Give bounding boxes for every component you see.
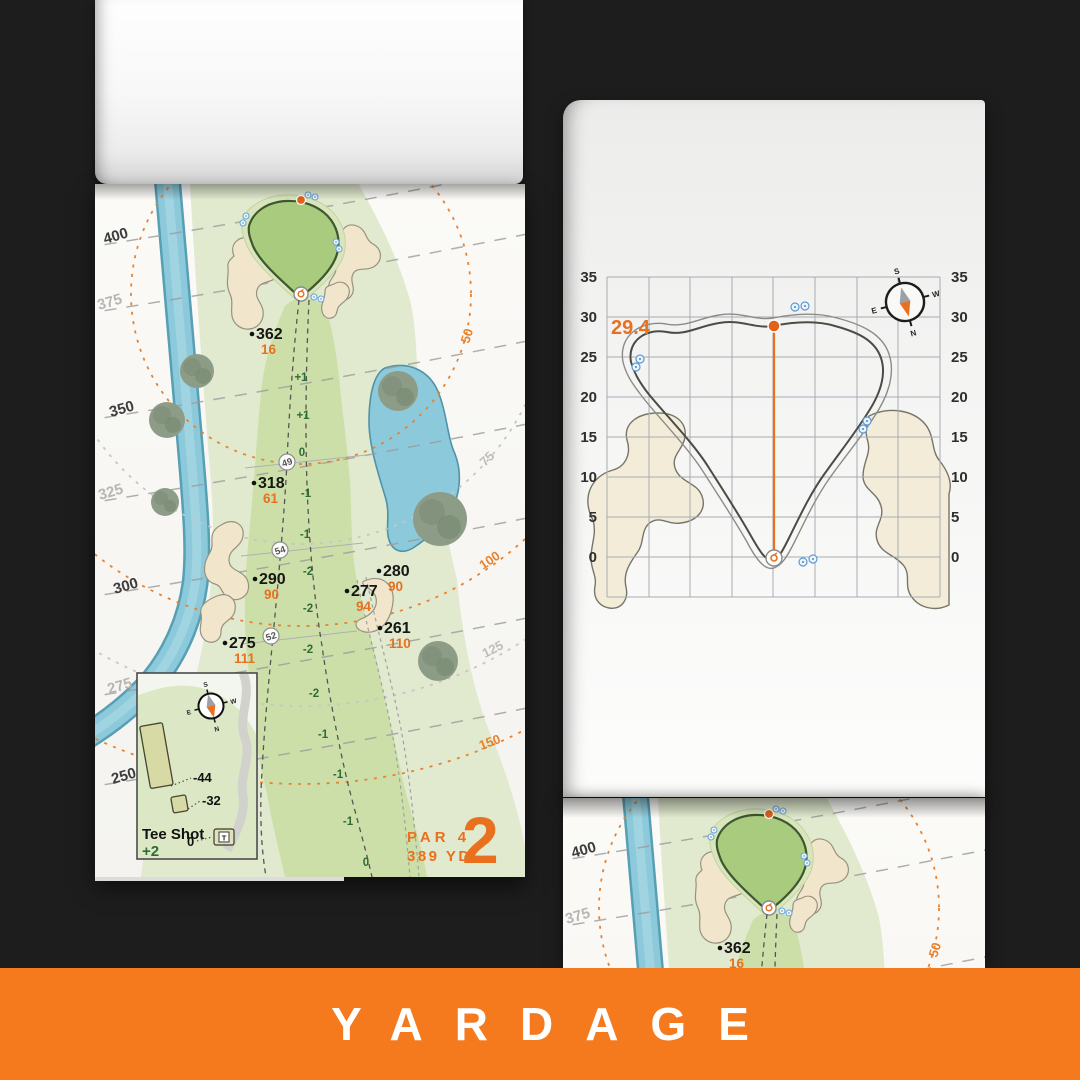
banner-title: YARDAGE — [299, 1001, 781, 1047]
depth-value: 29.4 — [611, 317, 651, 339]
hole-map-preview — [563, 798, 985, 968]
axis-tick: 10 — [951, 469, 968, 486]
axis-tick: 25 — [951, 349, 968, 366]
compass-n: N — [909, 328, 917, 338]
axis-tick: 25 — [580, 349, 597, 366]
yardage-banner: YARDAGE — [0, 968, 1080, 1080]
green-detail-page: 29.4 35 30 25 20 15 10 5 0 35 30 25 20 1… — [563, 100, 985, 797]
axis-tick: 5 — [589, 509, 597, 526]
axis-tick: 0 — [589, 549, 597, 566]
greenside-bunkers — [588, 410, 950, 608]
axis-tick: 30 — [580, 309, 597, 326]
pin-icon — [766, 550, 782, 566]
axis-tick: 15 — [951, 429, 968, 446]
compass-icon: S N W E — [862, 258, 949, 347]
axis-tick: 20 — [580, 389, 597, 406]
green-detail-chart: 29.4 35 30 25 20 15 10 5 0 35 30 25 20 1… — [563, 100, 985, 797]
hole-map-page — [95, 184, 525, 877]
axis-tick: 15 — [580, 429, 597, 446]
flipped-blank-page — [95, 0, 523, 184]
axis-right: 35 30 25 20 15 10 5 0 — [951, 269, 968, 566]
compass-s: S — [893, 266, 901, 276]
axis-tick: 10 — [580, 469, 597, 486]
compass-e: E — [870, 306, 878, 316]
axis-tick: 5 — [951, 509, 959, 526]
axis-left: 35 30 25 20 15 10 5 0 — [580, 269, 597, 566]
axis-tick: 35 — [580, 269, 597, 286]
axis-tick: 0 — [951, 549, 959, 566]
axis-tick: 20 — [951, 389, 968, 406]
back-edge-dot — [768, 320, 780, 332]
axis-tick: 30 — [951, 309, 968, 326]
axis-tick: 35 — [951, 269, 968, 286]
hole-map — [95, 184, 525, 877]
next-page-preview — [563, 798, 985, 968]
yardage-book-product-image: 29.4 35 30 25 20 15 10 5 0 35 30 25 20 1… — [0, 0, 1080, 1080]
